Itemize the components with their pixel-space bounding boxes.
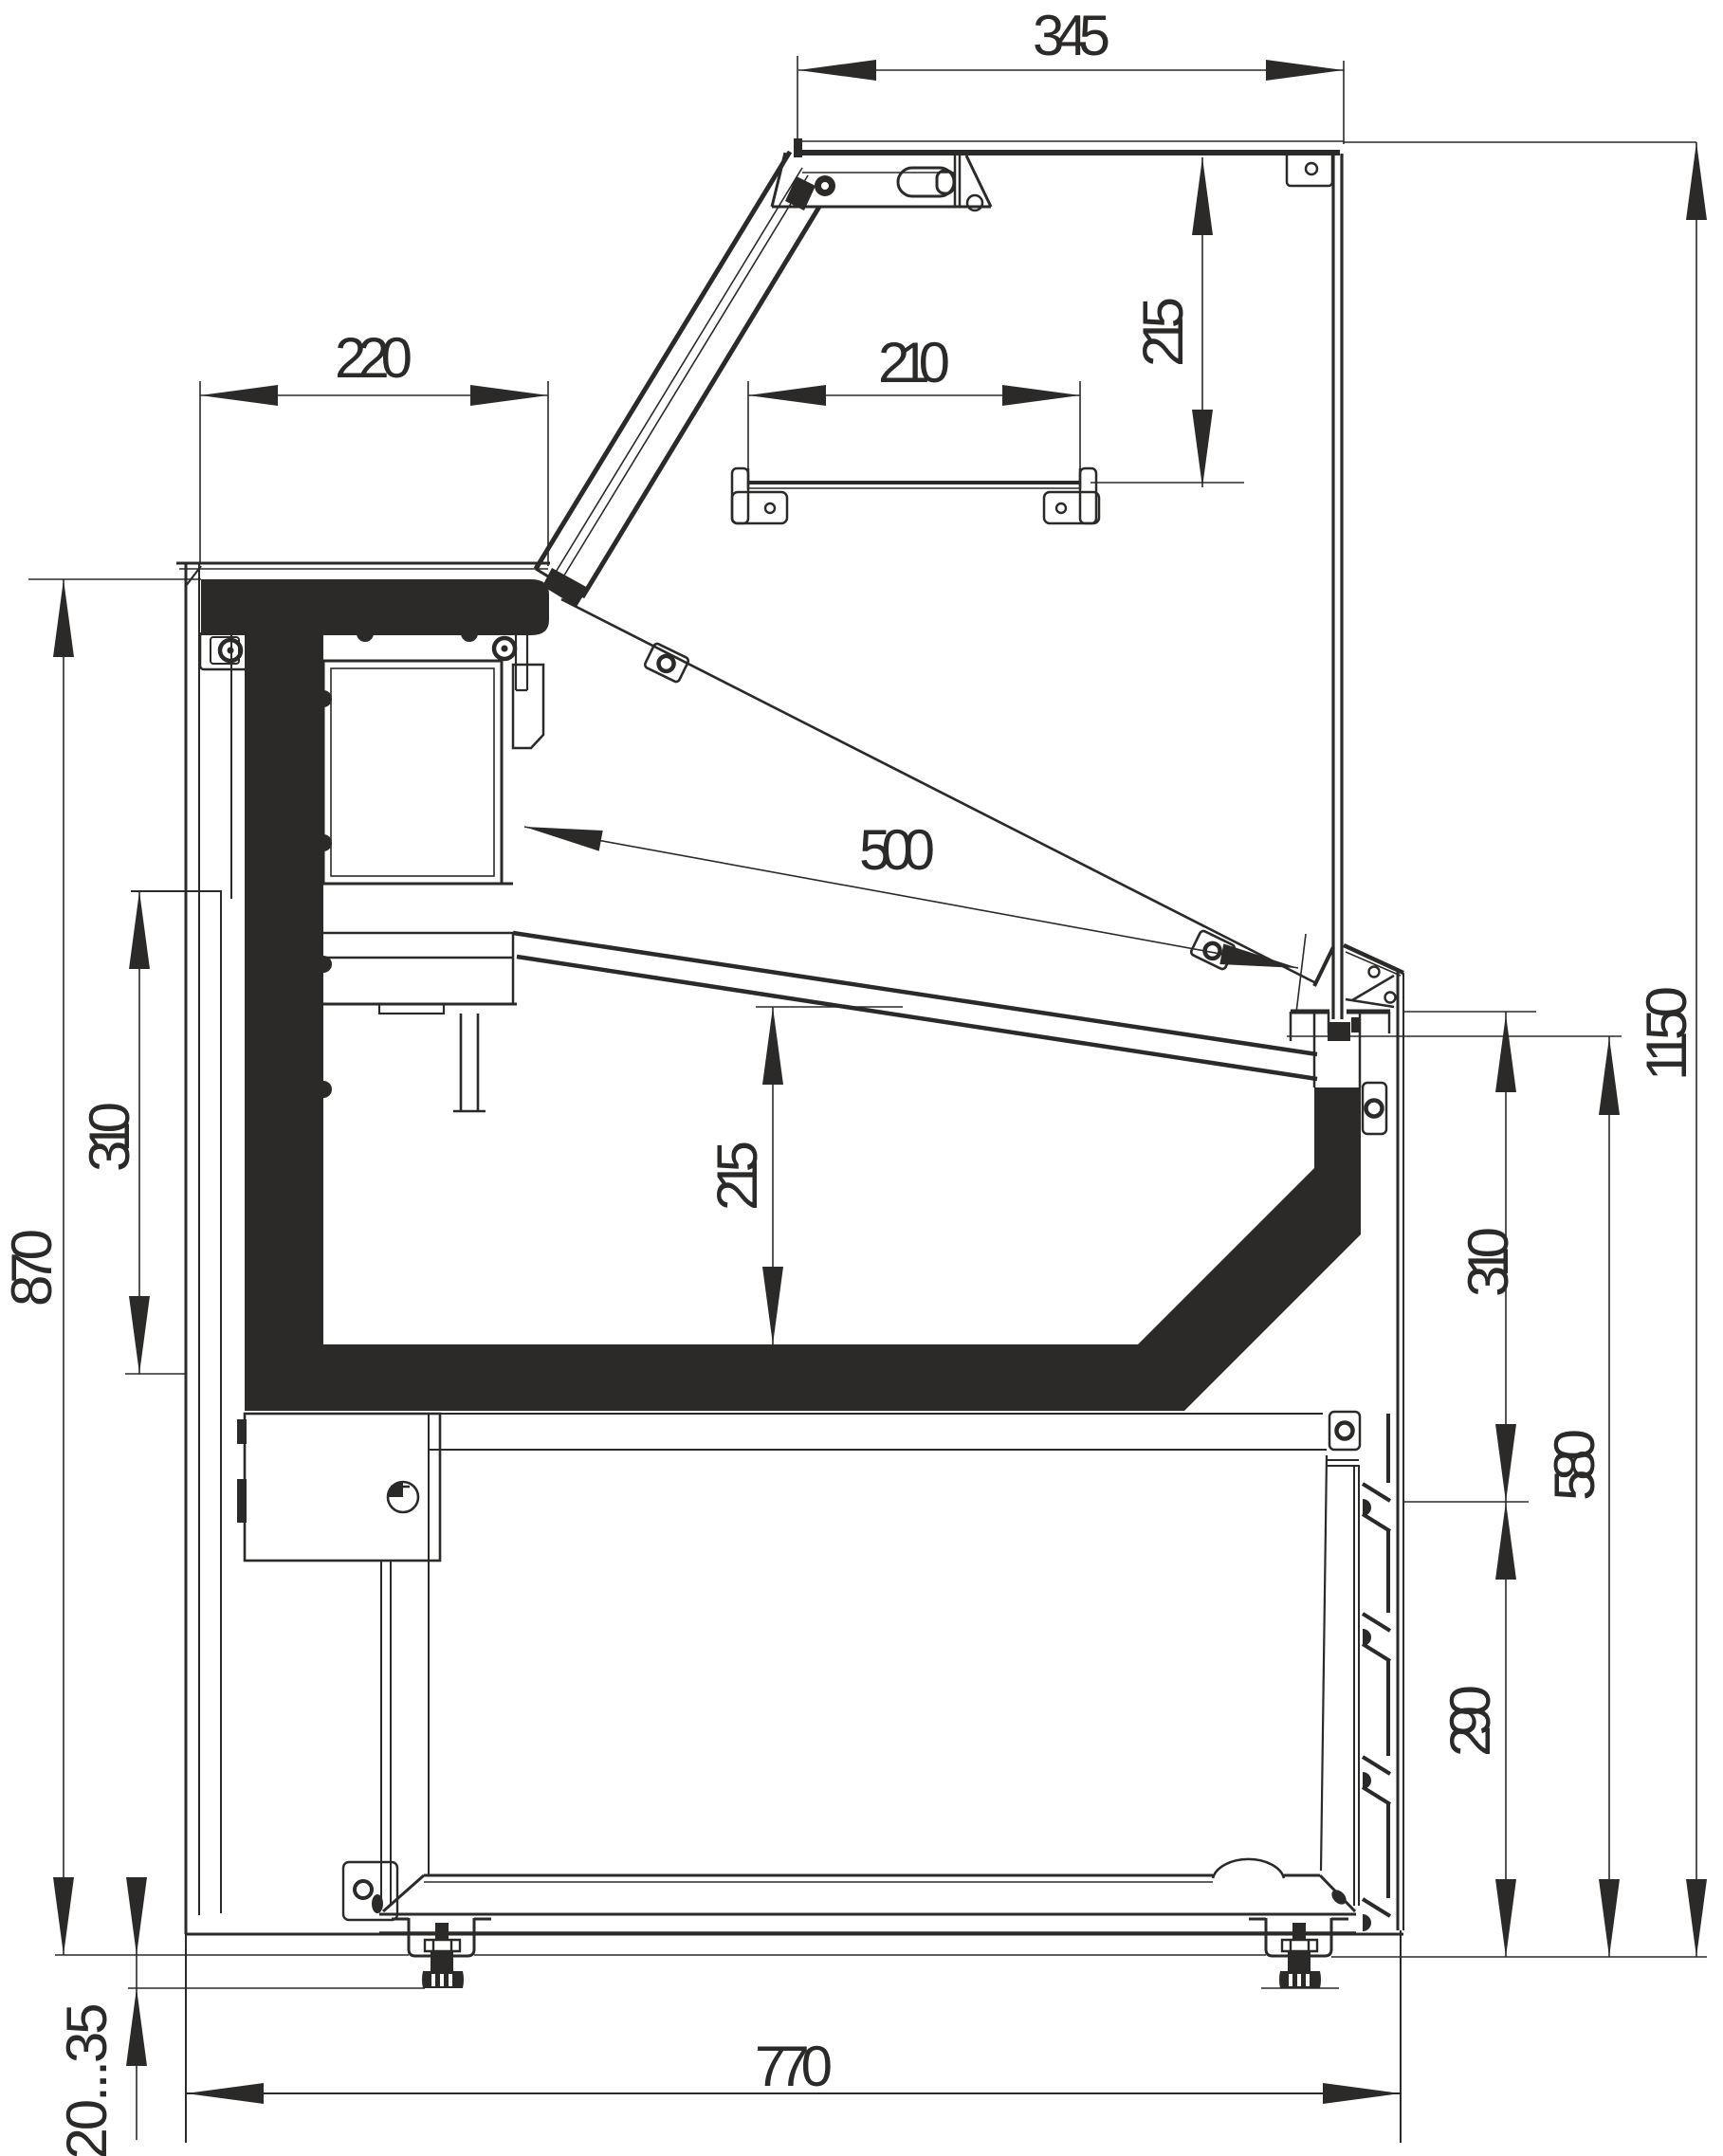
svg-text:20...35: 20...35: [55, 2003, 119, 2156]
svg-text:290: 290: [1439, 1685, 1502, 1757]
svg-text:215: 215: [1131, 297, 1195, 367]
svg-text:345: 345: [1033, 4, 1110, 67]
svg-text:310: 310: [1457, 1227, 1520, 1297]
svg-text:500: 500: [859, 818, 935, 882]
svg-text:580: 580: [1543, 1429, 1606, 1501]
svg-text:870: 870: [0, 1229, 64, 1306]
svg-text:770: 770: [755, 2035, 833, 2098]
svg-text:310: 310: [78, 1102, 141, 1172]
svg-text:210: 210: [878, 331, 950, 394]
svg-text:1150: 1150: [1635, 986, 1698, 1081]
svg-text:215: 215: [706, 1141, 769, 1211]
svg-text:220: 220: [335, 326, 412, 390]
